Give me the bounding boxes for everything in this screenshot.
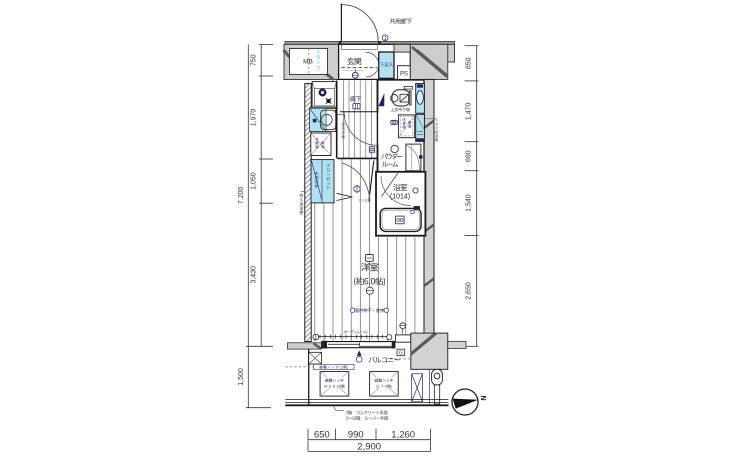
svg-text:1,970: 1,970: [251, 109, 258, 127]
svg-text:G: G: [399, 351, 403, 357]
svg-text:690: 690: [466, 150, 473, 162]
svg-text:1,260: 1,260: [391, 429, 415, 440]
svg-text:3,430: 3,430: [251, 266, 258, 284]
svg-text:7,200: 7,200: [238, 186, 245, 204]
svg-text:650: 650: [314, 429, 330, 440]
svg-text:MB: MB: [303, 58, 313, 65]
svg-text:1,540: 1,540: [466, 194, 473, 212]
svg-text:2,900: 2,900: [357, 441, 381, 452]
svg-text:750: 750: [251, 54, 258, 66]
svg-text:N: N: [479, 395, 486, 400]
svg-text:1,470: 1,470: [466, 102, 473, 120]
svg-text:1,050: 1,050: [251, 172, 258, 190]
svg-text:990: 990: [348, 429, 364, 440]
svg-text:PS: PS: [400, 71, 408, 77]
svg-text:2,650: 2,650: [466, 282, 473, 300]
svg-text:850: 850: [466, 57, 473, 69]
svg-text:1,500: 1,500: [238, 368, 245, 386]
